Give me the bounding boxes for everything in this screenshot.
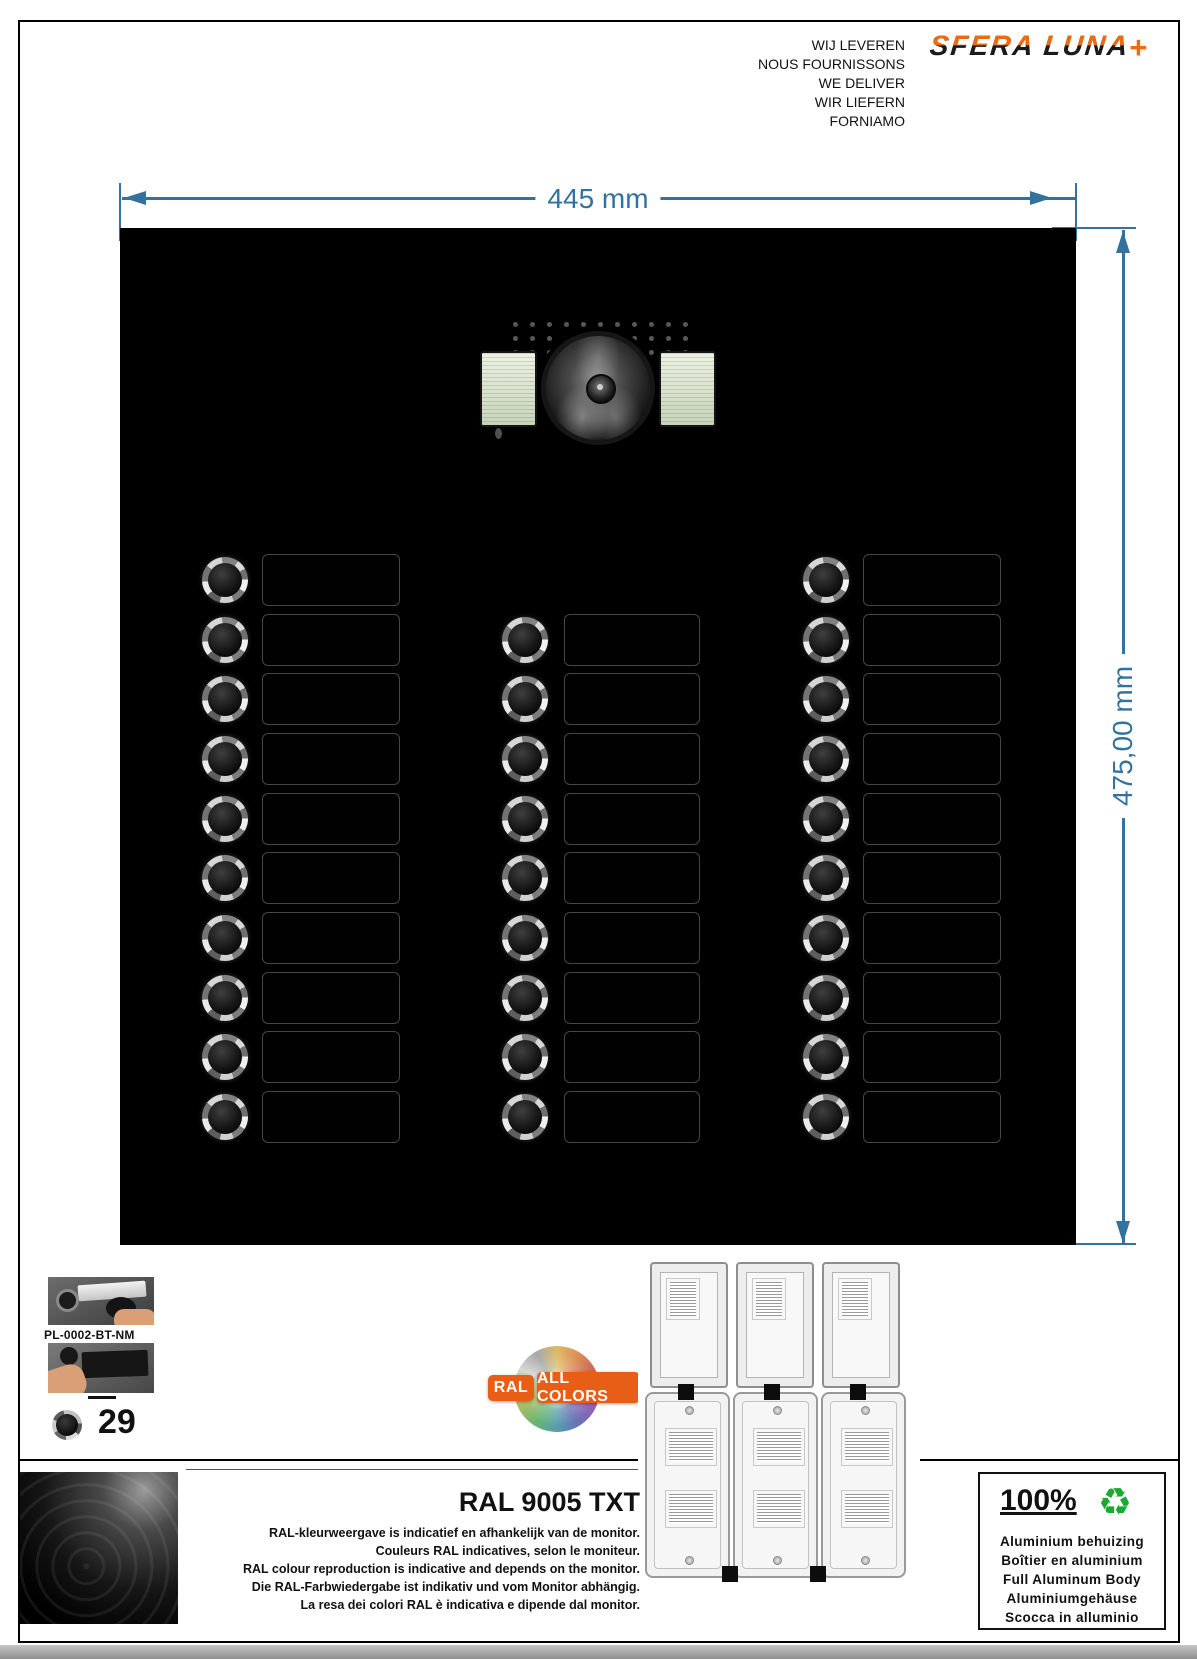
disclaimer-line: Die RAL-Farbwiedergabe ist indikativ und… xyxy=(243,1578,640,1596)
call-button-middle-3 xyxy=(502,736,548,782)
speaker-dot xyxy=(513,336,518,341)
percent-label: 100% xyxy=(1000,1484,1077,1518)
speaker-dot xyxy=(547,322,552,327)
box-label xyxy=(665,1428,717,1466)
camera-light-left xyxy=(480,351,537,427)
speaker-dot xyxy=(632,322,637,327)
camera-lens-icon xyxy=(586,374,616,404)
box-label xyxy=(841,1490,893,1528)
call-button-right-4 xyxy=(803,736,849,782)
call-button-left-10 xyxy=(202,1094,248,1140)
flush-mount-box xyxy=(645,1392,730,1578)
name-plate-right-5 xyxy=(863,793,1001,845)
height-dimension-label: 475,00 mm xyxy=(1107,654,1139,818)
ral-badge-label: RAL xyxy=(488,1375,534,1401)
clip xyxy=(764,1384,780,1400)
disclaimer-line: RAL-kleurweergave is indicatief en afhan… xyxy=(243,1524,640,1542)
material-line: Scocca in alluminio xyxy=(980,1608,1164,1627)
entrance-panel xyxy=(120,228,1076,1245)
name-plate-right-1 xyxy=(863,554,1001,606)
material-info-box: 100% ♻ Aluminium behuizing Boîtier en al… xyxy=(978,1472,1166,1630)
product-code: PL-0002-BT-NM xyxy=(44,1328,164,1342)
call-button-left-2 xyxy=(202,617,248,663)
disclaimer-line: La resa dei colori RAL è indicativa e di… xyxy=(243,1596,640,1614)
clip xyxy=(810,1566,826,1582)
name-plate-left-10 xyxy=(262,1091,400,1143)
photo-button xyxy=(56,1289,79,1312)
call-button-middle-9 xyxy=(502,1094,548,1140)
speaker-dot xyxy=(598,322,603,327)
name-plate-left-7 xyxy=(262,912,400,964)
delivery-tagline: WIJ LEVEREN NOUS FOURNISSONS WE DELIVER … xyxy=(758,36,905,131)
name-plate-left-9 xyxy=(262,1031,400,1083)
datasheet-page: WIJ LEVEREN NOUS FOURNISSONS WE DELIVER … xyxy=(0,0,1197,1659)
photo-button xyxy=(60,1347,78,1365)
call-button-right-2 xyxy=(803,617,849,663)
call-button-middle-7 xyxy=(502,975,548,1021)
clip xyxy=(722,1566,738,1582)
screw-hole xyxy=(773,1406,782,1415)
name-plate-middle-6 xyxy=(564,912,700,964)
box-label xyxy=(665,1490,717,1528)
clip xyxy=(850,1384,866,1400)
button-count: 29 xyxy=(98,1403,136,1442)
photo-nameplate xyxy=(82,1350,149,1378)
call-button-right-10 xyxy=(803,1094,849,1140)
call-button-right-5 xyxy=(803,796,849,842)
mounting-frame xyxy=(736,1262,814,1388)
name-plate-right-6 xyxy=(863,852,1001,904)
call-button-left-9 xyxy=(202,1034,248,1080)
section-divider xyxy=(18,1459,1178,1461)
call-button-middle-5 xyxy=(502,855,548,901)
name-plate-middle-3 xyxy=(564,733,700,785)
frame-label xyxy=(752,1278,786,1320)
material-lines: Aluminium behuizing Boîtier en aluminium… xyxy=(980,1532,1164,1627)
call-button-left-7 xyxy=(202,915,248,961)
speaker-dot xyxy=(615,322,620,327)
tagline-line: WIJ LEVEREN xyxy=(758,36,905,55)
tagline-line: NOUS FOURNISSONS xyxy=(758,55,905,74)
screw-hole xyxy=(861,1406,870,1415)
call-button-icon xyxy=(52,1410,82,1440)
ral-color-title: RAL 9005 TXT xyxy=(459,1487,640,1518)
call-button-right-6 xyxy=(803,855,849,901)
speaker-dot xyxy=(666,322,671,327)
ral-disclaimer: RAL-kleurweergave is indicatief en afhan… xyxy=(243,1524,640,1614)
ral9005-sample-photo xyxy=(20,1472,178,1624)
name-plate-left-1 xyxy=(262,554,400,606)
sfera-luna-logo: SFERA LUNA SFERA LUNA + xyxy=(930,30,1176,64)
call-button-left-1 xyxy=(202,557,248,603)
tagline-line: WE DELIVER xyxy=(758,74,905,93)
call-button-left-5 xyxy=(202,796,248,842)
frame-label xyxy=(838,1278,872,1320)
name-plate-left-6 xyxy=(262,852,400,904)
name-plate-middle-9 xyxy=(564,1091,700,1143)
microphone-hole xyxy=(495,428,502,439)
disclaimer-line: Couleurs RAL indicatives, selon le monit… xyxy=(243,1542,640,1560)
name-plate-right-2 xyxy=(863,614,1001,666)
tagline-line: WIR LIEFERN xyxy=(758,93,905,112)
material-line: Aluminium behuizing xyxy=(980,1532,1164,1551)
name-plate-left-8 xyxy=(262,972,400,1024)
name-plate-right-10 xyxy=(863,1091,1001,1143)
arrow-left-icon xyxy=(124,191,146,205)
mounting-frame xyxy=(650,1262,728,1388)
tagline-line: FORNIAMO xyxy=(758,112,905,131)
name-plate-middle-5 xyxy=(564,852,700,904)
speaker-dot xyxy=(649,336,654,341)
name-plate-middle-4 xyxy=(564,793,700,845)
name-plate-middle-2 xyxy=(564,673,700,725)
name-plate-left-2 xyxy=(262,614,400,666)
page-edge-strip xyxy=(0,1645,1197,1659)
ral-badge-all-colors: ALL COLORS xyxy=(537,1372,640,1403)
name-plate-right-9 xyxy=(863,1031,1001,1083)
call-button-right-8 xyxy=(803,975,849,1021)
screw-hole xyxy=(861,1556,870,1565)
material-line: Full Aluminum Body xyxy=(980,1570,1164,1589)
call-button-right-1 xyxy=(803,557,849,603)
name-plate-left-3 xyxy=(262,673,400,725)
box-label xyxy=(753,1428,805,1466)
call-button-middle-8 xyxy=(502,1034,548,1080)
flush-mount-box xyxy=(733,1392,818,1578)
name-plate-left-4 xyxy=(262,733,400,785)
speaker-dot xyxy=(513,322,518,327)
call-button-middle-4 xyxy=(502,796,548,842)
arrow-up-icon xyxy=(1116,231,1130,253)
arrow-right-icon xyxy=(1030,191,1052,205)
name-plate-middle-8 xyxy=(564,1031,700,1083)
speaker-dot xyxy=(649,350,654,355)
width-dimension-label: 445 mm xyxy=(535,183,660,215)
speaker-dot xyxy=(564,322,569,327)
call-button-left-3 xyxy=(202,676,248,722)
screw-hole xyxy=(773,1556,782,1565)
name-plate-right-8 xyxy=(863,972,1001,1024)
nameplate-insert-photo xyxy=(48,1343,154,1393)
name-plate-right-7 xyxy=(863,912,1001,964)
speaker-dot xyxy=(683,336,688,341)
call-button-left-8 xyxy=(202,975,248,1021)
call-button-right-9 xyxy=(803,1034,849,1080)
call-button-right-3 xyxy=(803,676,849,722)
nameplate-removal-photo xyxy=(48,1277,154,1325)
speaker-dot xyxy=(632,336,637,341)
mounting-boxes-photo xyxy=(638,1256,920,1586)
screw-hole xyxy=(685,1406,694,1415)
name-plate-middle-7 xyxy=(564,972,700,1024)
call-button-left-6 xyxy=(202,855,248,901)
call-button-middle-6 xyxy=(502,915,548,961)
section-subline xyxy=(186,1469,644,1470)
frame-label xyxy=(666,1278,700,1320)
box-label xyxy=(841,1428,893,1466)
arrow-down-icon xyxy=(1116,1221,1130,1243)
flush-mount-box xyxy=(821,1392,906,1578)
speaker-dot xyxy=(649,322,654,327)
photo-hand xyxy=(114,1309,154,1325)
speaker-dot xyxy=(581,322,586,327)
clip xyxy=(678,1384,694,1400)
speaker-dot xyxy=(530,322,535,327)
speaker-dot xyxy=(683,322,688,327)
call-button-left-4 xyxy=(202,736,248,782)
material-line: Aluminiumgehäuse xyxy=(980,1589,1164,1608)
call-button-middle-2 xyxy=(502,676,548,722)
speaker-dot xyxy=(666,336,671,341)
material-line: Boîtier en aluminium xyxy=(980,1551,1164,1570)
speaker-dot xyxy=(530,336,535,341)
name-plate-left-5 xyxy=(262,793,400,845)
call-button-right-7 xyxy=(803,915,849,961)
camera-light-right xyxy=(659,351,716,427)
speaker-dot xyxy=(547,336,552,341)
recycle-icon: ♻ xyxy=(1098,1480,1132,1524)
mounting-frame xyxy=(822,1262,900,1388)
name-plate-right-4 xyxy=(863,733,1001,785)
disclaimer-line: RAL colour reproduction is indicative an… xyxy=(243,1560,640,1578)
call-button-middle-1 xyxy=(502,617,548,663)
box-label xyxy=(753,1490,805,1528)
separator-dash xyxy=(88,1396,116,1399)
name-plate-right-3 xyxy=(863,673,1001,725)
name-plate-middle-1 xyxy=(564,614,700,666)
screw-hole xyxy=(685,1556,694,1565)
logo-plus-sign: + xyxy=(1129,30,1149,65)
